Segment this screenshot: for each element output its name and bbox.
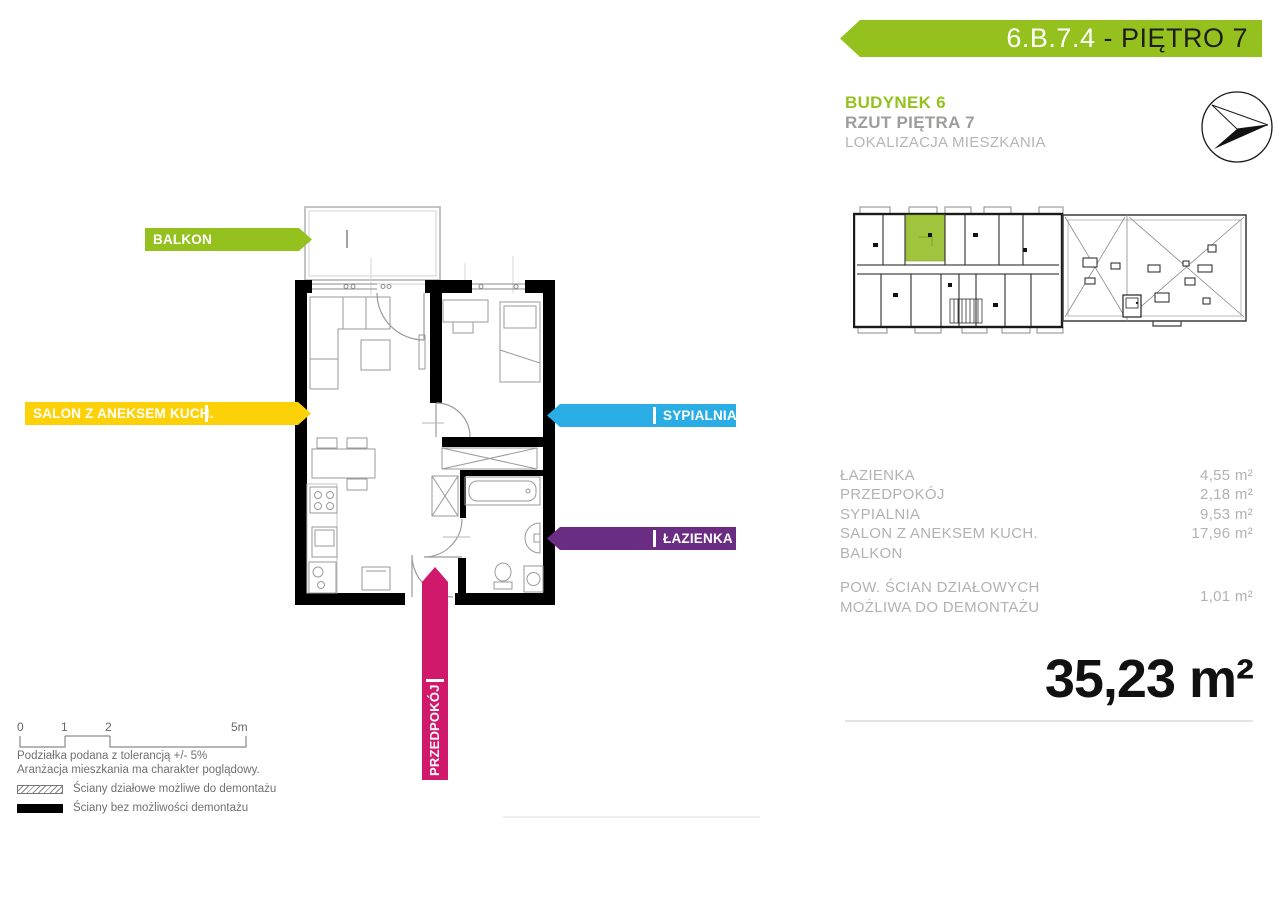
- divider-line: [503, 816, 760, 818]
- solid-wall-swatch: [17, 804, 63, 813]
- divider-line: [845, 720, 1253, 722]
- label-balkon: BALKON: [145, 228, 312, 251]
- scale-bar: [10, 730, 260, 752]
- overview-roof-section: [1063, 215, 1246, 326]
- area-row-label: SALON Z ANEKSEM KUCH.: [840, 524, 1038, 543]
- partition-label-line2: MOŻLIWA DO DEMONTAŻU: [840, 598, 1253, 618]
- overview-apartment-wing: [854, 207, 1063, 333]
- building-overview-plan: [853, 203, 1248, 335]
- area-row-value: 17,96 m²: [1191, 524, 1253, 543]
- area-row-label: ŁAZIENKA: [840, 466, 915, 485]
- legend-item: Ściany bez możliwości demontażu: [17, 802, 276, 815]
- legend-item-label: Ściany działowe możliwe do demontażu: [73, 783, 276, 796]
- header-block: BUDYNEK 6 RZUT PIĘTRA 7 LOKALIZACJA MIES…: [845, 93, 1046, 152]
- area-row: BALKON: [840, 544, 1253, 563]
- exterior-walls: [295, 280, 555, 605]
- unit-code: 6.B.7.4: [1006, 23, 1095, 53]
- area-row-label: SYPIALNIA: [840, 505, 920, 524]
- label-separator: [205, 405, 208, 422]
- partition-area-block: POW. ŚCIAN DZIAŁOWYCH MOŻLIWA DO DEMONTA…: [840, 578, 1253, 617]
- legend: Podziałka podana z tolerancją +/- 5% Ara…: [17, 750, 276, 815]
- floor-plan: [290, 200, 560, 610]
- label-separator: [426, 679, 444, 682]
- area-row: SALON Z ANEKSEM KUCH. 17,96 m²: [840, 524, 1253, 543]
- area-row: PRZEDPOKÓJ 2,18 m²: [840, 485, 1253, 504]
- label-separator: [653, 407, 656, 424]
- area-table: ŁAZIENKA 4,55 m² PRZEDPOKÓJ 2,18 m² SYPI…: [840, 466, 1253, 563]
- label-przedpokoj: PRZEDPOKÓJ: [422, 567, 448, 780]
- total-area: 35,23 m²: [850, 650, 1253, 708]
- label-salon: SALON Z ANEKSEM KUCH.: [25, 402, 311, 425]
- label-lazienka: ŁAZIENKA: [547, 527, 736, 550]
- bedroom-furniture: [443, 300, 540, 382]
- label-balkon-text: BALKON: [153, 232, 212, 247]
- kitchen-fixtures: [307, 484, 337, 593]
- partition-label-line1: POW. ŚCIAN DZIAŁOWYCH: [840, 578, 1253, 598]
- partition-value: 1,01 m²: [1200, 588, 1253, 605]
- legend-note-1: Podziałka podana z tolerancją +/- 5%: [17, 750, 276, 763]
- area-row-value: 4,55 m²: [1200, 466, 1253, 485]
- highlighted-unit: [906, 215, 945, 261]
- north-arrow-icon: [1198, 88, 1276, 166]
- legend-item-label: Ściany bez możliwości demontażu: [73, 802, 248, 815]
- hallway-furniture: [362, 423, 537, 590]
- location-subtitle: LOKALIZACJA MIESZKANIA: [845, 133, 1046, 152]
- label-przedpokoj-text: PRZEDPOKÓJ: [422, 684, 448, 776]
- balcony-outline: [305, 207, 513, 295]
- legend-item: Ściany działowe możliwe do demontażu: [17, 783, 276, 796]
- living-room-furniture: [310, 297, 425, 490]
- label-salon-text: SALON Z ANEKSEM KUCH.: [33, 406, 214, 421]
- label-lazienka-text: ŁAZIENKA: [663, 527, 732, 550]
- label-sypialnia: SYPIALNIA: [547, 404, 736, 427]
- area-row-value: 9,53 m²: [1200, 505, 1253, 524]
- area-row: SYPIALNIA 9,53 m²: [840, 505, 1253, 524]
- building-title: BUDYNEK 6: [845, 93, 1046, 113]
- label-sypialnia-text: SYPIALNIA: [663, 404, 732, 427]
- area-row-value: 2,18 m²: [1200, 485, 1253, 504]
- legend-note-2: Aranżacja mieszkania ma charakter pogląd…: [17, 764, 276, 777]
- unit-banner: 6.B.7.4 - PIĘTRO 7: [840, 20, 1262, 57]
- bathroom-fixtures: [465, 477, 543, 592]
- area-row-label: BALKON: [840, 544, 903, 563]
- label-separator: [653, 530, 656, 547]
- area-row-label: PRZEDPOKÓJ: [840, 485, 945, 504]
- floor-label: - PIĘTRO 7: [1095, 23, 1248, 53]
- floor-plan-title: RZUT PIĘTRA 7: [845, 113, 1046, 133]
- windows: [312, 284, 525, 289]
- apartment-card-page: 6.B.7.4 - PIĘTRO 7 BUDYNEK 6 RZUT PIĘTRA…: [0, 0, 1280, 905]
- area-row: ŁAZIENKA 4,55 m²: [840, 466, 1253, 485]
- hatched-wall-swatch: [17, 785, 63, 794]
